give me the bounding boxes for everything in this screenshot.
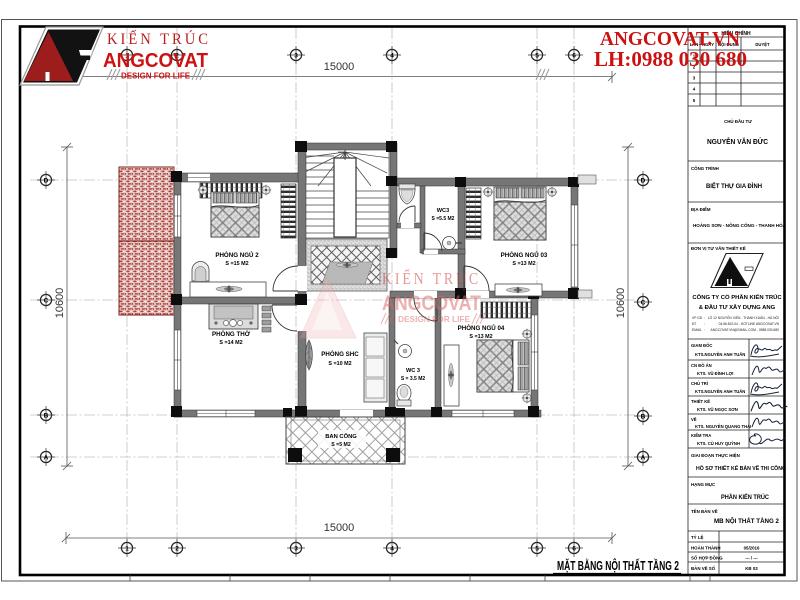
svg-text:3: 3 [294,546,298,553]
svg-text:PHẦN KIẾN TRÚC: PHẦN KIẾN TRÚC [721,494,769,501]
svg-text:VP GD: VP GD [692,316,703,320]
svg-text:ANGCOVAT: ANGCOVAT [382,292,481,315]
svg-text:2: 2 [175,546,179,553]
svg-text:HẠNG MỤC: HẠNG MỤC [691,482,716,487]
svg-text:LÔ 12 NGUYỄN XIỂN - THANH XUÂN: LÔ 12 NGUYỄN XIỂN - THANH XUÂN - HÀ NỘI [708,315,779,320]
svg-text:CÔNG TY CỔ PHẦN KIẾN TRÚC: CÔNG TY CỔ PHẦN KIẾN TRÚC [692,293,782,301]
svg-text:CÔNG TRÌNH: CÔNG TRÌNH [691,166,719,171]
svg-text:S = 3.5 M2: S = 3.5 M2 [401,376,426,382]
svg-text:DESIGN FOR LIFE: DESIGN FOR LIFE [121,71,190,81]
svg-text::: : [704,316,705,320]
svg-text:PHÒNG NGỦ 04: PHÒNG NGỦ 04 [458,324,505,332]
svg-text:S =13 M2: S =13 M2 [512,261,535,267]
svg-text:CHỦ TRÌ: CHỦ TRÌ [691,381,708,386]
svg-text:10600: 10600 [615,288,627,319]
svg-text:TÊN BẢN VẼ: TÊN BẢN VẼ [691,509,718,514]
svg-text:3: 3 [294,53,298,60]
svg-text:NGUYỄN VĂN ĐỨC: NGUYỄN VĂN ĐỨC [707,137,768,146]
svg-text:S =10 M2: S =10 M2 [328,361,351,367]
svg-text:BIỆT THỰ GIA ĐÌNH: BIỆT THỰ GIA ĐÌNH [706,182,763,190]
svg-text:GIAM ĐỐC: GIAM ĐỐC [691,343,712,348]
svg-text:S =14 M2: S =14 M2 [219,340,242,346]
svg-text:BAN CÔNG: BAN CÔNG [325,432,357,440]
svg-text:ĐƠN VỊ TƯ VẤN THIẾT KẾ: ĐƠN VỊ TƯ VẤN THIẾT KẾ [691,246,746,251]
svg-text:S =5 M2: S =5 M2 [331,442,351,448]
svg-text:DUYỆT: DUYỆT [755,42,770,47]
svg-text:SỐ HỢP ĐỒNG: SỐ HỢP ĐỒNG [691,556,723,561]
svg-text:BẢN VẼ SỐ: BẢN VẼ SỐ [691,566,716,571]
svg-text:15000: 15000 [324,61,355,73]
svg-text:LH:0988 030 680: LH:0988 030 680 [594,47,747,71]
svg-text:MẶT BẰNG NỘI THẤT TẦNG 2: MẶT BẰNG NỘI THẤT TẦNG 2 [557,558,679,573]
svg-text:ANGCOVAT.VN@GMAIL.COM - 0988.0: ANGCOVAT.VN@GMAIL.COM - 0988.030.680 [711,328,780,332]
svg-text:TỶ LỆ: TỶ LỆ [691,535,704,540]
svg-text:KIẾN TRÚC: KIẾN TRÚC [382,269,481,288]
svg-text:A: A [641,455,646,462]
svg-text:5: 5 [535,546,539,553]
svg-text:04.66.822.04 - HOTLINE ANGCOVA: 04.66.822.04 - HOTLINE ANGCOVAT.VN [719,322,780,326]
svg-text:KTS. VŨ NGỌC SƠN: KTS. VŨ NGỌC SƠN [697,407,738,412]
svg-text:KTS. VŨ ĐÌNH LỢI: KTS. VŨ ĐÌNH LỢI [697,371,733,376]
svg-text:ĐT: ĐT [692,322,696,326]
svg-text:GIAI ĐOẠN THỰC HIỆN: GIAI ĐOẠN THỰC HIỆN [691,453,740,458]
svg-text:4: 4 [390,546,394,553]
svg-text:S =13 M2: S =13 M2 [469,334,492,340]
svg-text:4: 4 [390,53,394,60]
svg-text:PHÒNG THỜ: PHÒNG THỜ [212,330,251,338]
svg-text:ANGCOVAT: ANGCOVAT [103,50,208,72]
svg-text:KIỂM TRA: KIỂM TRA [691,433,711,438]
svg-text:B: B [44,413,49,420]
svg-text:KIẾN TRÚC: KIẾN TRÚC [107,31,211,48]
svg-text:KTS. CÙ HUY QUỲNH: KTS. CÙ HUY QUỲNH [697,441,740,446]
svg-text:CHỦ ĐẦU TƯ: CHỦ ĐẦU TƯ [724,119,752,124]
svg-text:10600: 10600 [54,288,66,319]
svg-text:KTS.NGUYỄN ANH TUẤN: KTS.NGUYỄN ANH TUẤN [695,389,745,394]
svg-text:ĐỊA ĐIỂM: ĐỊA ĐIỂM [691,207,711,212]
svg-text:DESIGN FOR LIFE: DESIGN FOR LIFE [398,314,470,324]
svg-text:05/2016: 05/2016 [744,546,760,551]
svg-text:HOÀN THÀNH: HOÀN THÀNH [691,546,721,551]
svg-text:S =15 M2: S =15 M2 [225,261,248,267]
svg-text:PHÒNG NGỦ 2: PHÒNG NGỦ 2 [215,251,259,259]
svg-text:KTS.NGUYỄN ANH TUẤN: KTS.NGUYỄN ANH TUẤN [695,352,745,357]
svg-text:C: C [44,298,49,305]
svg-text:PHÒNG SHC: PHÒNG SHC [321,350,359,358]
svg-text:5: 5 [535,53,539,60]
svg-text:PHÒNG NGỦ 03: PHÒNG NGỦ 03 [501,251,548,259]
svg-text:KB 03: KB 03 [745,566,758,571]
svg-text:D: D [44,178,49,185]
svg-text:S =5.5 M2: S =5.5 M2 [432,216,455,222]
svg-text:6: 6 [572,546,576,553]
svg-text:THIẾT KẾ: THIẾT KẾ [691,399,710,404]
svg-text:& ĐẦU TƯ XÂY DỰNG ANG: & ĐẦU TƯ XÂY DỰNG ANG [699,304,776,311]
svg-text:1: 1 [125,546,129,553]
svg-text:CN ĐỒ ÁN: CN ĐỒ ÁN [691,363,712,368]
svg-text:HỒ SƠ THIẾT KẾ BẢN VẼ THI CÔNG: HỒ SƠ THIẾT KẾ BẢN VẼ THI CÔNG [696,464,786,472]
svg-text:A: A [44,455,49,462]
svg-text:WC3: WC3 [437,208,449,214]
svg-text:VẼ: VẼ [691,417,697,422]
svg-text:C: C [641,300,646,307]
svg-text:KTS. NGUYỄN QUANG THÁI: KTS. NGUYỄN QUANG THÁI [695,424,751,429]
svg-text:D: D [641,178,646,185]
svg-text::: : [704,328,705,332]
svg-text:6: 6 [572,53,576,60]
svg-text:WC 3: WC 3 [406,368,420,374]
svg-text:B: B [641,414,646,421]
svg-text:EMAIL: EMAIL [692,328,702,332]
svg-text:--- / ---: --- / --- [745,556,758,561]
svg-text::: : [704,322,705,326]
svg-text:15000: 15000 [324,522,355,534]
